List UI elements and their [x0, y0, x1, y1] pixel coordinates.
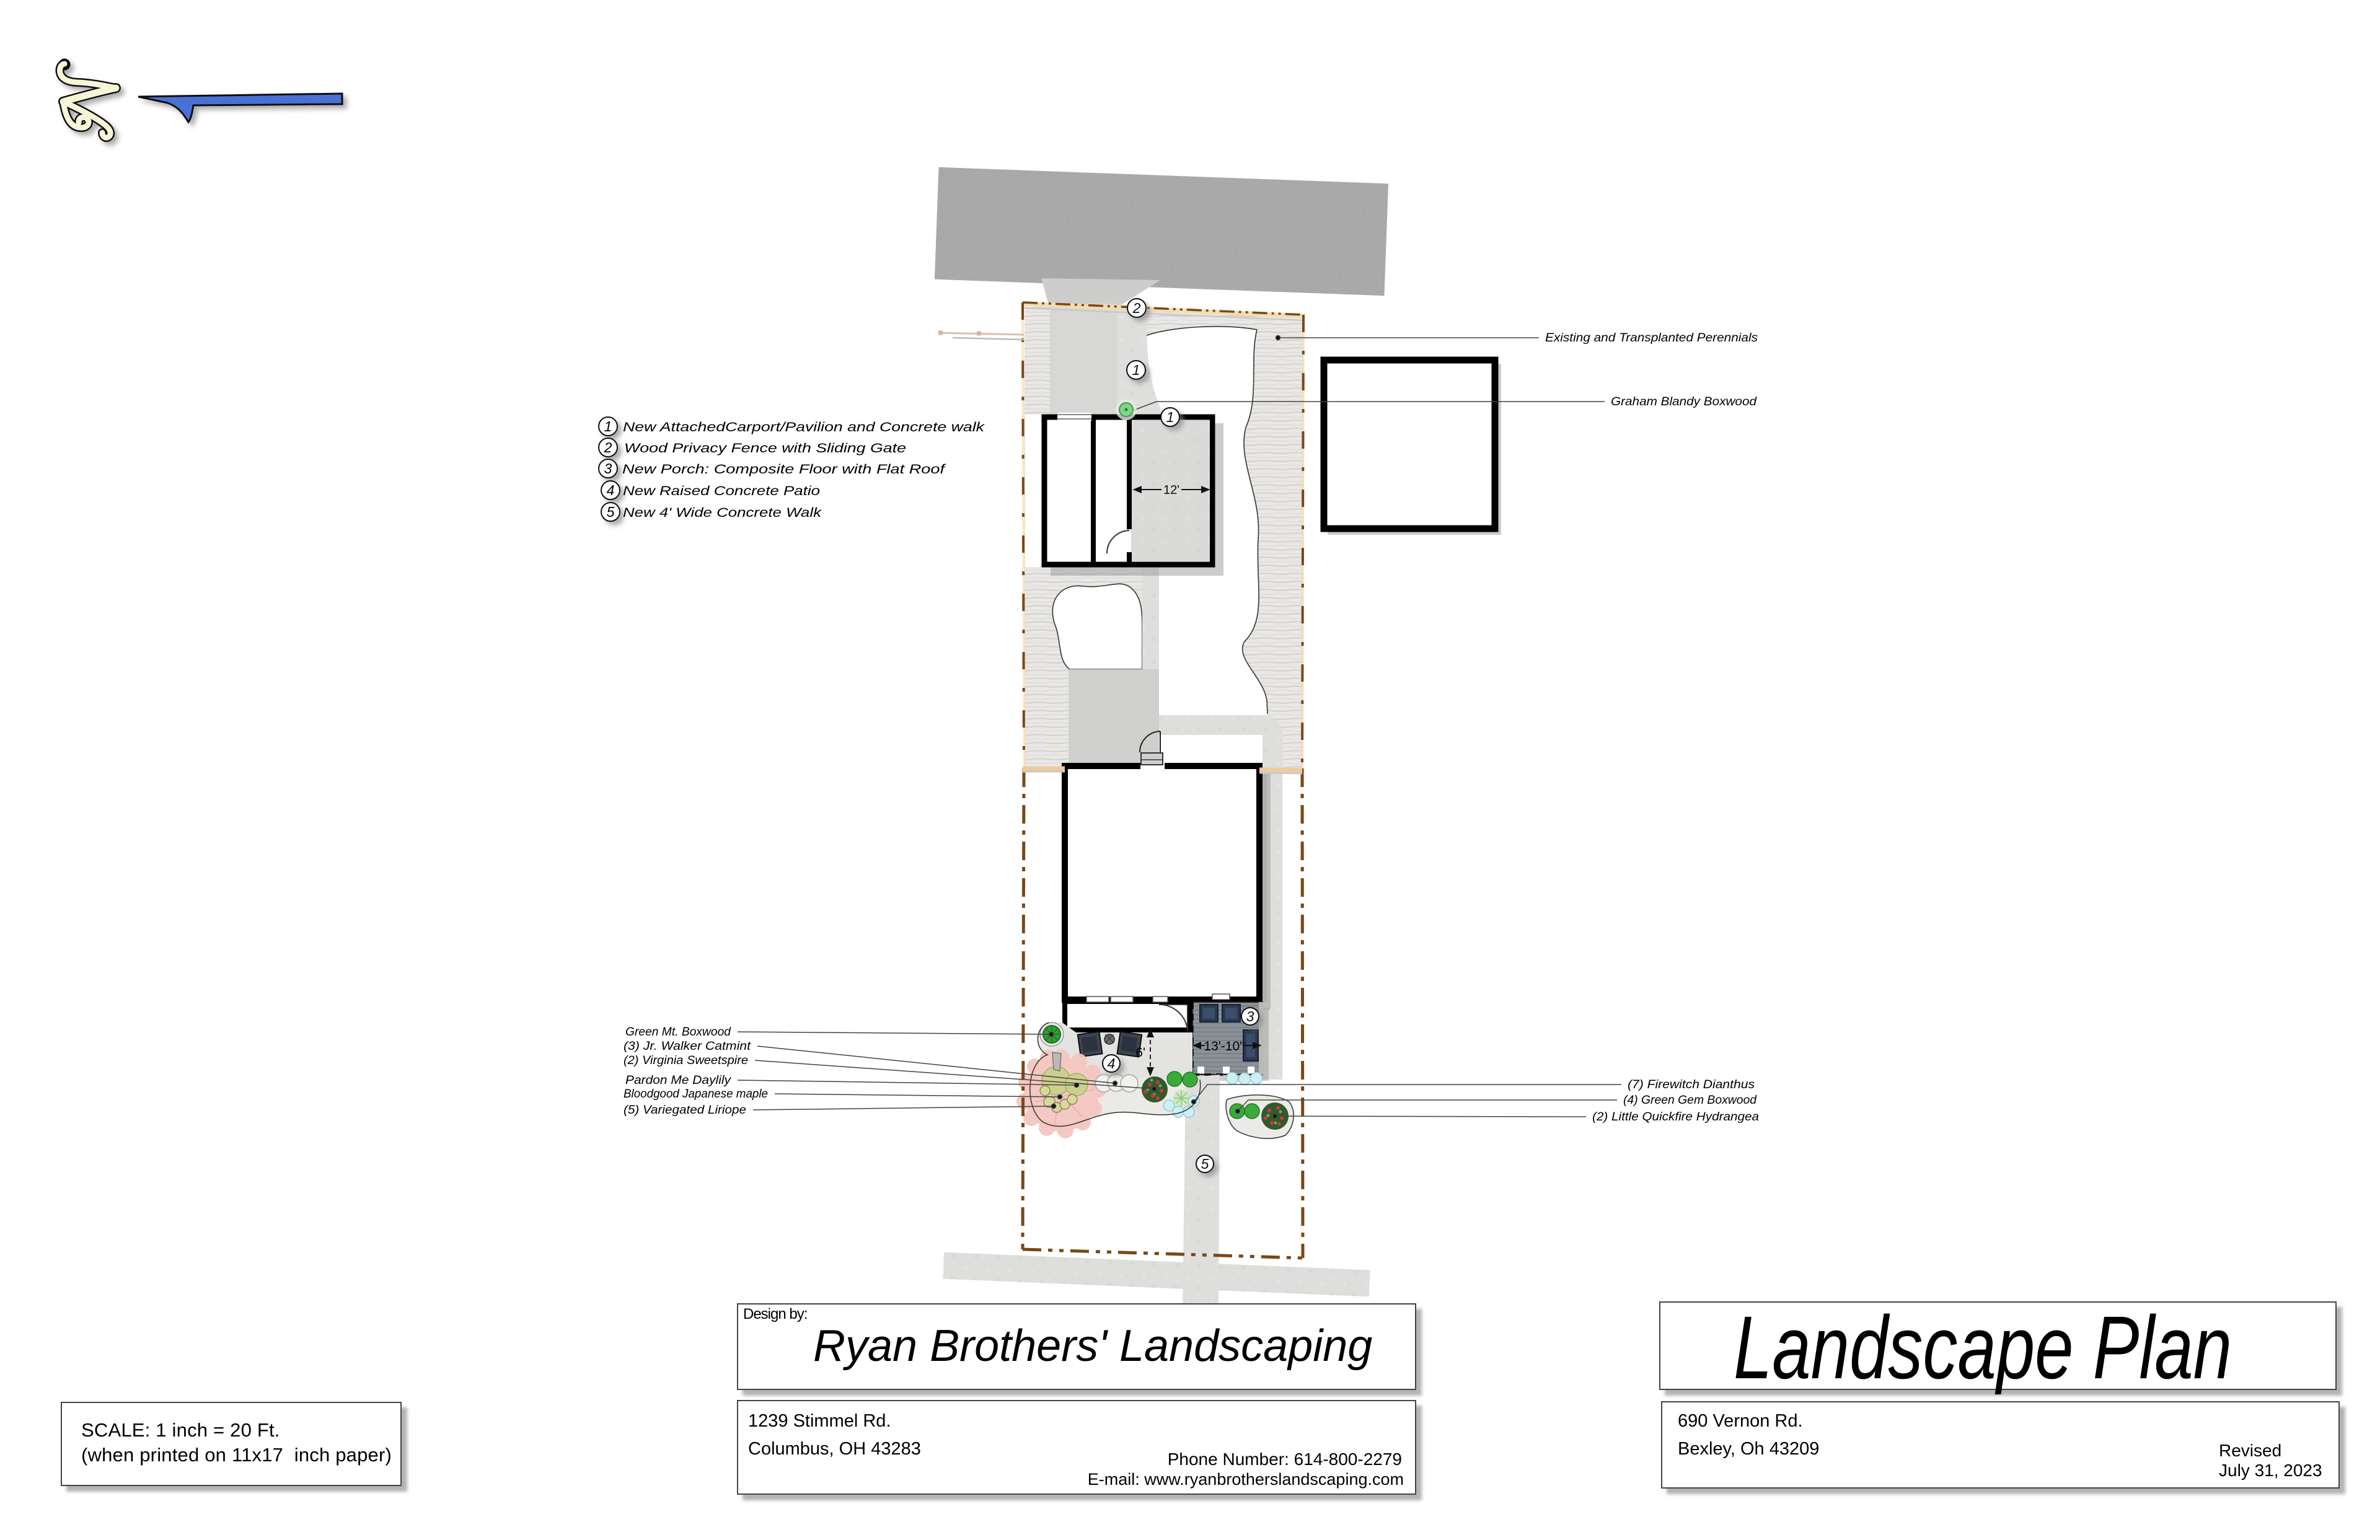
svg-text:Pardon Me Daylily: Pardon Me Daylily: [625, 1074, 732, 1087]
svg-text:Green Mt. Boxwood: Green Mt. Boxwood: [625, 1026, 731, 1039]
svg-text:(3) Jr. Walker Catmint: (3) Jr. Walker Catmint: [624, 1040, 751, 1053]
svg-text:6': 6': [1135, 1045, 1145, 1060]
svg-text:3: 3: [1246, 1008, 1254, 1024]
svg-text:13'-10": 13'-10": [1204, 1039, 1244, 1054]
svg-text:New AttachedCarport/Pavilion a: New AttachedCarport/Pavilion and Concret…: [623, 420, 985, 434]
svg-text:2: 2: [1132, 300, 1141, 316]
svg-text:12': 12': [1163, 483, 1179, 497]
svg-text:Landscape Plan: Landscape Plan: [1734, 1298, 2232, 1394]
svg-text:1: 1: [1166, 409, 1175, 425]
svg-text:Wood Privacy Fence with Slidin: Wood Privacy Fence with Sliding Gate: [624, 441, 906, 455]
svg-text:4: 4: [1108, 1055, 1116, 1071]
svg-text:1: 1: [1132, 362, 1140, 378]
svg-text:(2) Little Quickfire Hydrangea: (2) Little Quickfire Hydrangea: [1592, 1111, 1759, 1124]
svg-text:1: 1: [604, 418, 612, 434]
svg-text:New Porch: Composite Floor wit: New Porch: Composite Floor with Flat Roo…: [622, 462, 946, 477]
svg-text:New 4' Wide Concrete Walk: New 4' Wide Concrete Walk: [623, 506, 822, 520]
svg-text:3: 3: [604, 460, 612, 477]
svg-text:Existing and Transplanted Pere: Existing and Transplanted Perennials: [1545, 332, 1758, 345]
svg-text:Graham Blandy Boxwood: Graham Blandy Boxwood: [1611, 395, 1758, 408]
svg-text:Bloodgood Japanese maple: Bloodgood Japanese maple: [624, 1088, 768, 1101]
svg-text:New Raised Concrete Patio: New Raised Concrete Patio: [623, 484, 820, 498]
svg-text:(2) Virginia Sweetspire: (2) Virginia Sweetspire: [624, 1054, 748, 1067]
svg-text:5: 5: [1201, 1156, 1209, 1172]
svg-text:(4) Green Gem Boxwood: (4) Green Gem Boxwood: [1623, 1094, 1757, 1107]
svg-text:5: 5: [607, 504, 615, 520]
svg-text:2: 2: [604, 439, 612, 455]
svg-text:4: 4: [607, 482, 615, 498]
svg-text:(5) Variegated Liriope: (5) Variegated Liriope: [624, 1104, 746, 1117]
svg-text:(7) Firewitch Dianthus: (7) Firewitch Dianthus: [1628, 1078, 1755, 1091]
